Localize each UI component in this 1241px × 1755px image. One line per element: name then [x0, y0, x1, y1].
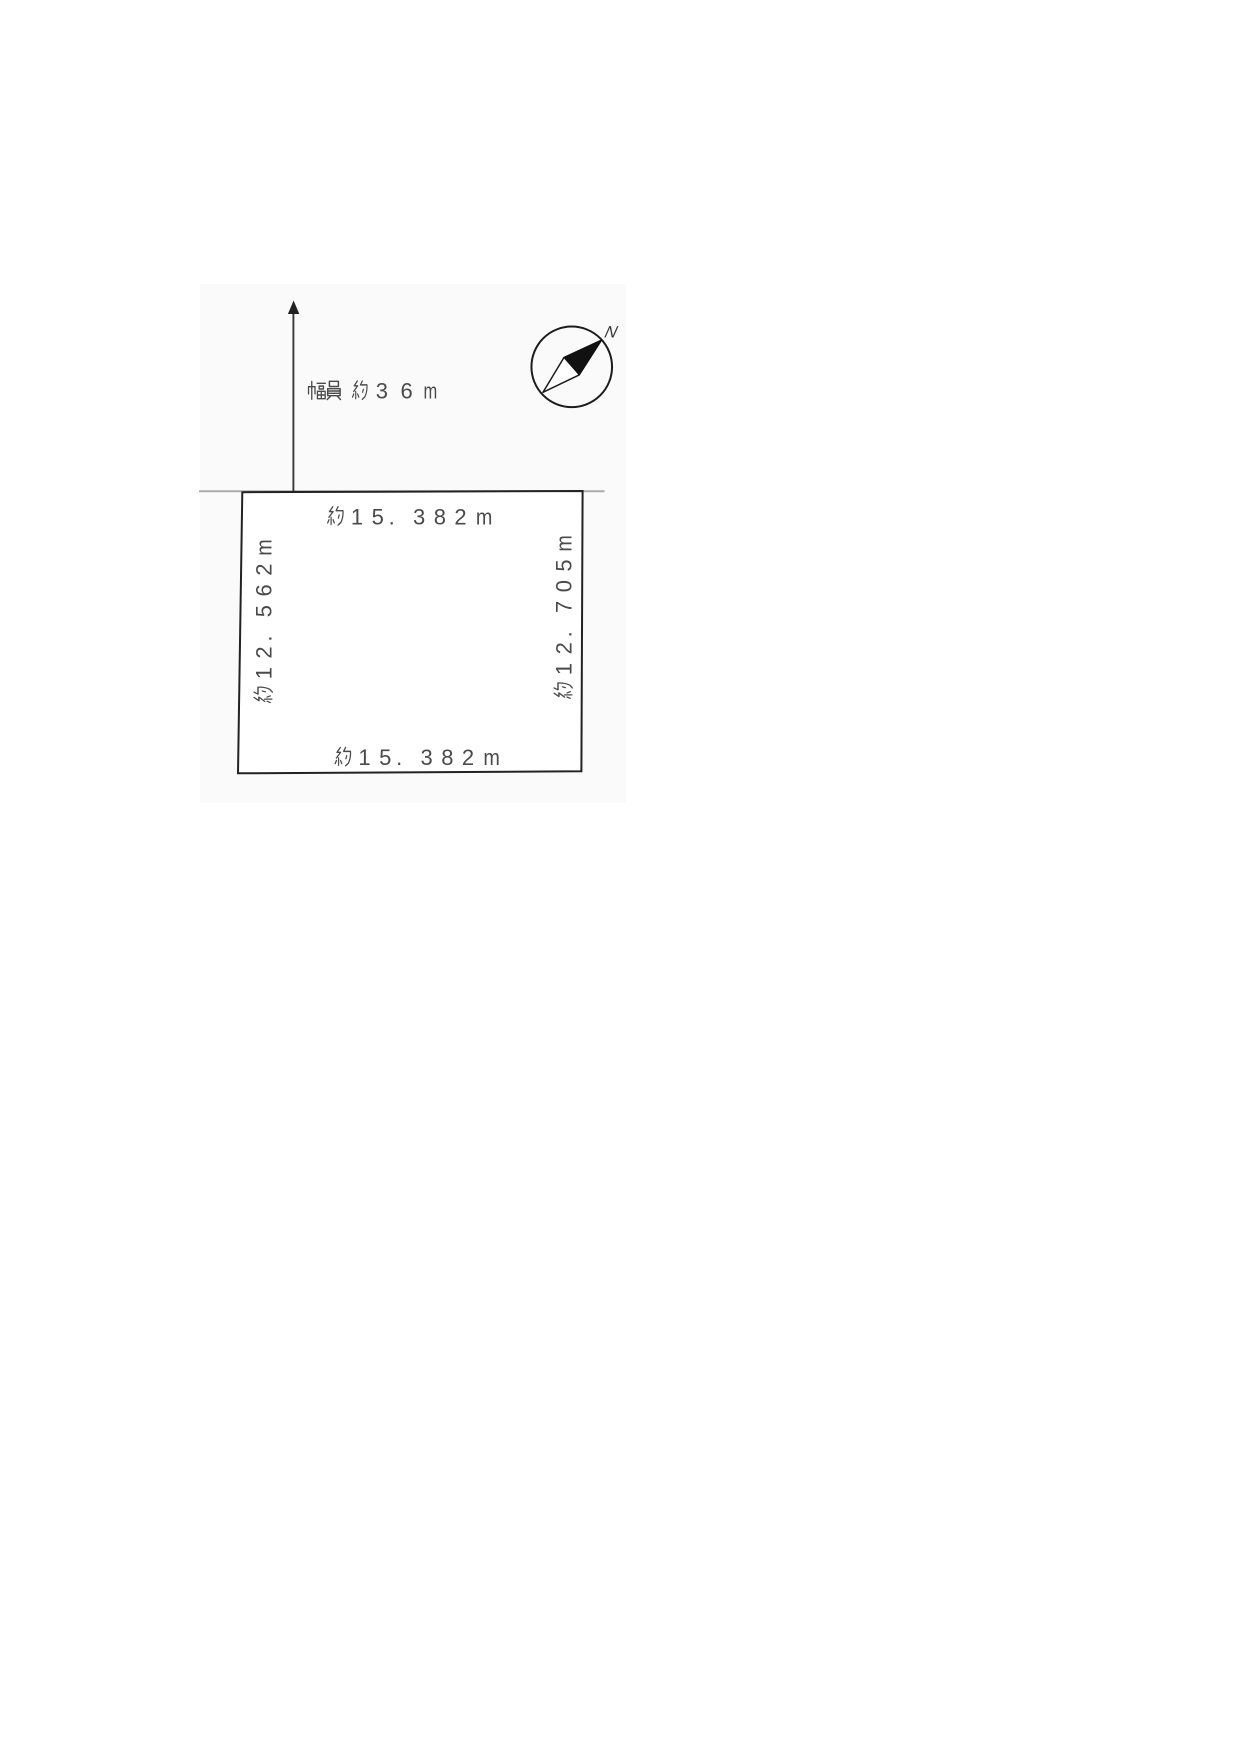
svg-text:2: 2: [454, 504, 466, 529]
svg-text:.: .: [396, 745, 402, 770]
svg-text:7: 7: [552, 601, 577, 613]
svg-text:.: .: [389, 504, 395, 529]
svg-text:2: 2: [462, 745, 474, 770]
svg-text:6: 6: [252, 584, 277, 596]
svg-text:2: 2: [252, 564, 277, 576]
svg-text:3: 3: [413, 504, 425, 529]
svg-text:1: 1: [358, 745, 370, 770]
svg-text:.: .: [252, 635, 277, 641]
svg-text:m: m: [476, 505, 492, 529]
svg-text:6: 6: [401, 379, 413, 404]
svg-text:1: 1: [552, 663, 577, 675]
svg-text:5: 5: [552, 559, 577, 571]
svg-text:m: m: [553, 535, 577, 551]
svg-text:.: .: [552, 631, 577, 637]
svg-text:m: m: [483, 746, 499, 770]
svg-text:3: 3: [421, 745, 433, 770]
svg-text:5: 5: [379, 745, 391, 770]
svg-text:8: 8: [441, 745, 453, 770]
svg-text:5: 5: [372, 504, 384, 529]
svg-text:m: m: [253, 539, 277, 555]
svg-text:5: 5: [252, 605, 277, 617]
svg-text:2: 2: [552, 642, 577, 654]
svg-text:m: m: [424, 379, 438, 404]
svg-text:8: 8: [434, 504, 446, 529]
svg-text:0: 0: [552, 580, 577, 592]
svg-text:1: 1: [351, 504, 363, 529]
svg-text:2: 2: [252, 646, 277, 658]
svg-text:3: 3: [376, 379, 388, 404]
svg-text:1: 1: [252, 667, 277, 679]
